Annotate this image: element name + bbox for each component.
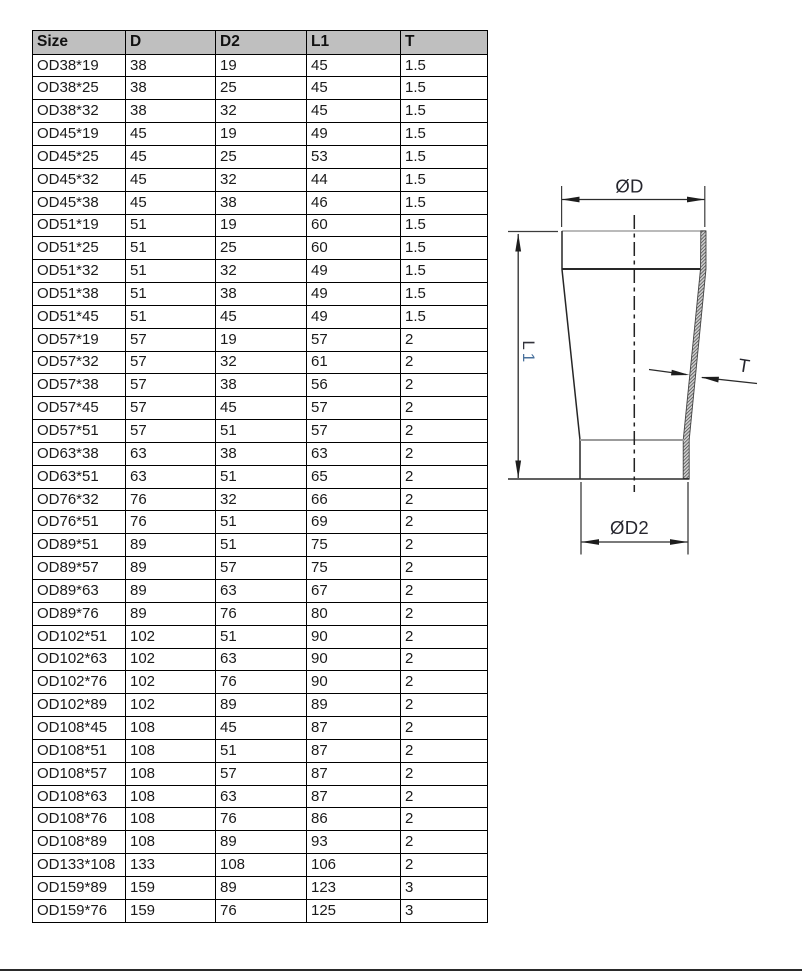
svg-text:ØD2: ØD2 — [610, 517, 649, 538]
svg-text:T: T — [737, 354, 751, 377]
svg-text:ØD: ØD — [615, 176, 643, 197]
svg-text:L1: L1 — [519, 340, 538, 365]
